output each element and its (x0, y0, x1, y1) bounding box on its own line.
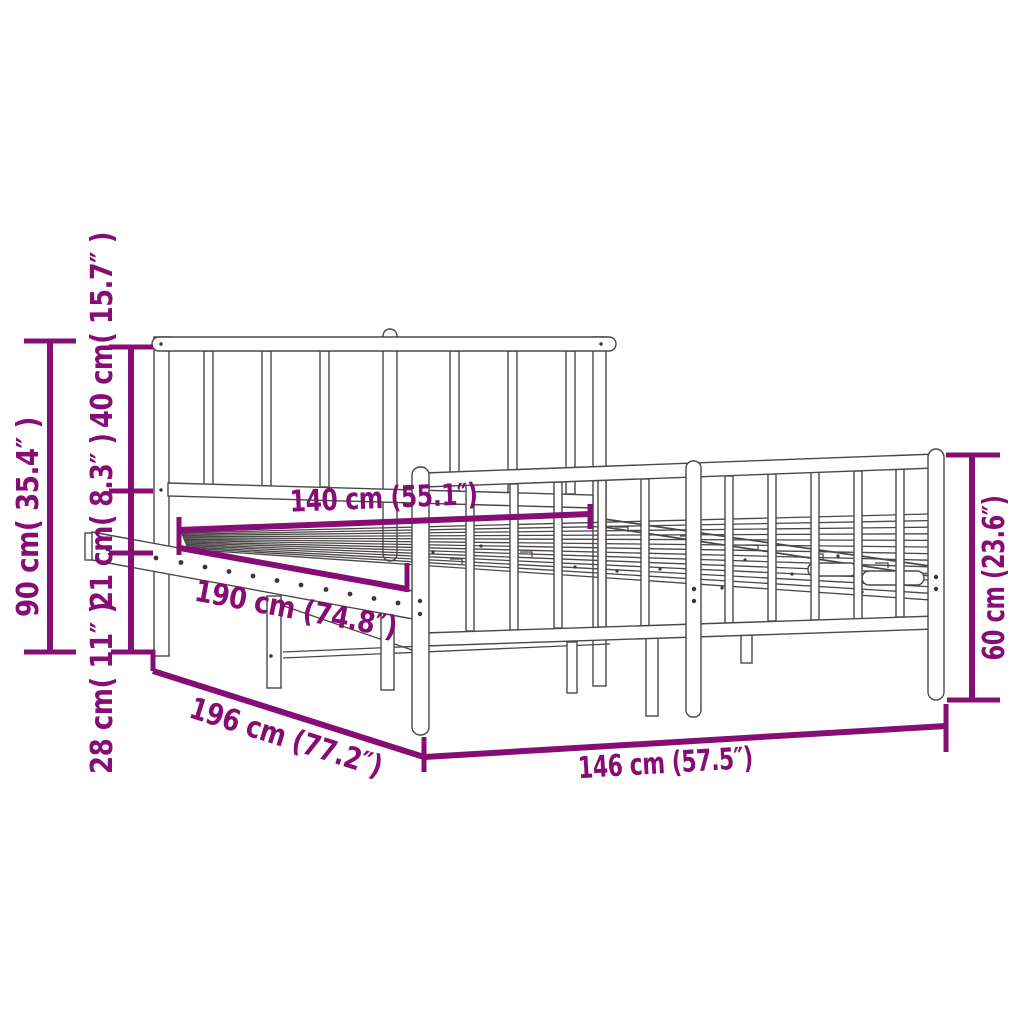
support-leg (646, 638, 658, 716)
footboard-bar (554, 482, 562, 628)
footboard-bar (725, 476, 733, 623)
dim-label-under-bed-clearance: 28 cm( 11″ ) (85, 602, 120, 774)
dim-footboard-height: 60 cm (23.6″) (946, 455, 1012, 700)
footboard-bar (854, 471, 862, 619)
headboard-left-leg (154, 337, 169, 656)
dim-label-total-height: 90 cm( 35.4″ ) (11, 417, 46, 617)
dim-frame-outer-width: 146 cm (57.5″) (424, 704, 946, 786)
dim-height-segments: 40 cm( 15.7″ ) 21 cm( 8.3″ ) 28 cm( 11″ … (85, 232, 155, 774)
diagram-canvas: 90 cm( 35.4″ ) 40 cm( 15.7″ ) 21 cm( 8.3… (0, 0, 1024, 1024)
headboard-bar (450, 351, 459, 491)
dim-label-headboard-above-base: 40 cm( 15.7″ ) (85, 232, 120, 428)
dim-label-frame-side-height: 21 cm( 8.3″ ) (85, 434, 120, 609)
footboard-bar (768, 474, 776, 621)
footboard-bar (641, 479, 649, 626)
footboard-bottom-rail (424, 616, 936, 646)
headboard-middle-post (383, 329, 397, 561)
footboard-far-post (928, 449, 944, 700)
bed-frame-dimension-diagram: 90 cm( 35.4″ ) 40 cm( 15.7″ ) 21 cm( 8.3… (0, 0, 1024, 1024)
footboard-leg-stub (741, 635, 752, 663)
footboard-bar (598, 480, 606, 627)
footboard-bar (510, 484, 518, 630)
headboard-bar (320, 351, 329, 487)
footboard-bar (811, 472, 819, 620)
dim-headboard-total-height: 90 cm( 35.4″ ) (11, 341, 76, 652)
headboard-top-rail (152, 337, 616, 351)
support-leg (567, 642, 577, 693)
headboard-bar (262, 351, 271, 486)
footboard-bar (896, 469, 904, 617)
dim-label-mattress-width: 140 cm (55.1″) (289, 477, 478, 520)
headboard-bar (204, 351, 213, 485)
dim-label-footboard-height: 60 cm (23.6″) (977, 496, 1012, 661)
